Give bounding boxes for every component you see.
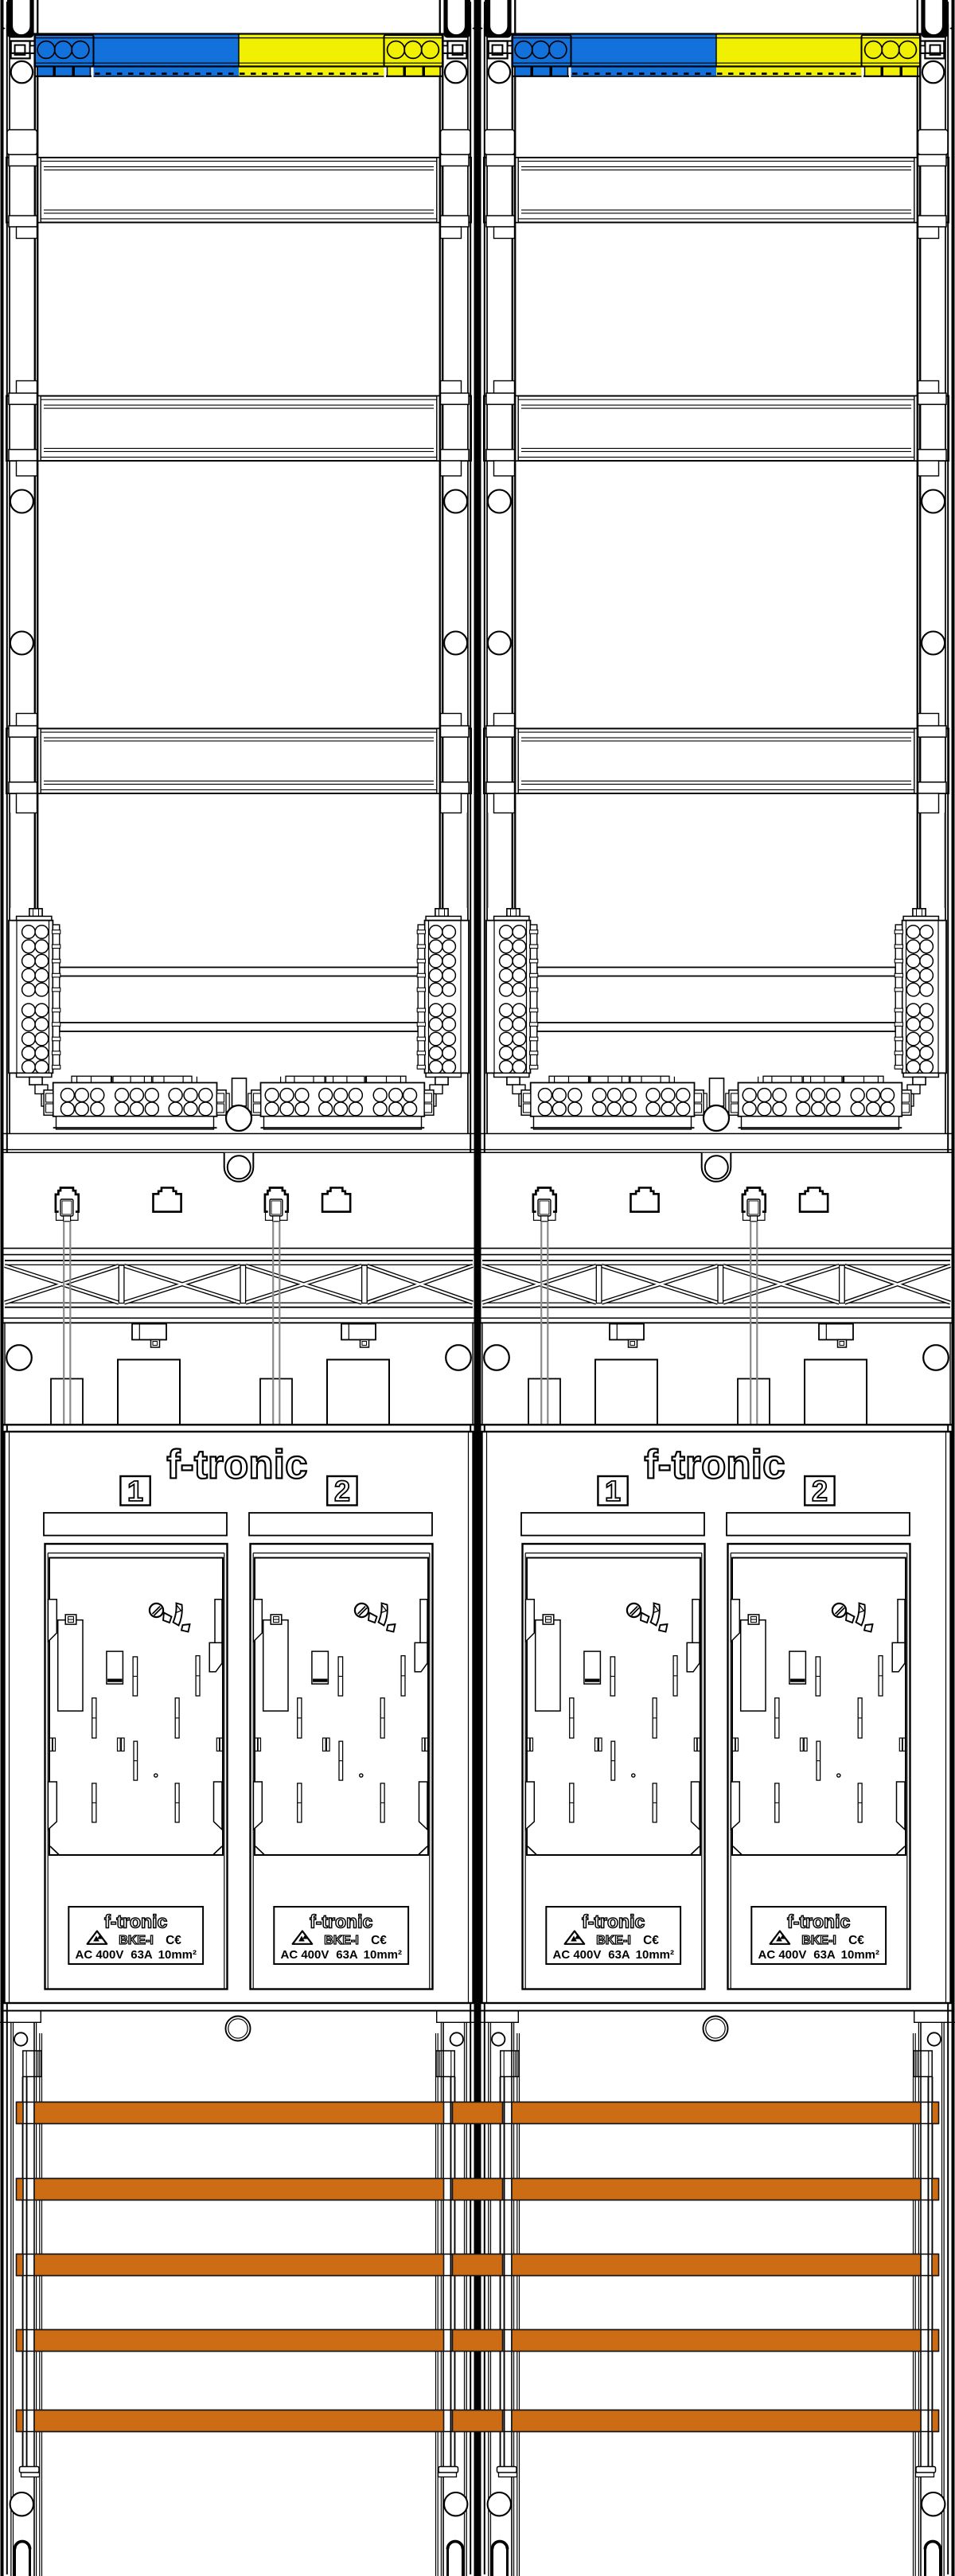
svg-text:2: 2 (334, 1475, 350, 1507)
svg-text:f-tronic: f-tronic (104, 1912, 167, 1932)
svg-text:AC 400V: AC 400V (76, 1948, 124, 1962)
svg-text:f-tronic: f-tronic (167, 1442, 308, 1487)
svg-text:C€: C€ (166, 1934, 181, 1947)
svg-text:63A: 63A (131, 1948, 153, 1962)
svg-text:10mm²: 10mm² (158, 1948, 197, 1962)
svg-text:1: 1 (127, 1475, 143, 1507)
svg-text:BKE-I: BKE-I (119, 1934, 154, 1947)
